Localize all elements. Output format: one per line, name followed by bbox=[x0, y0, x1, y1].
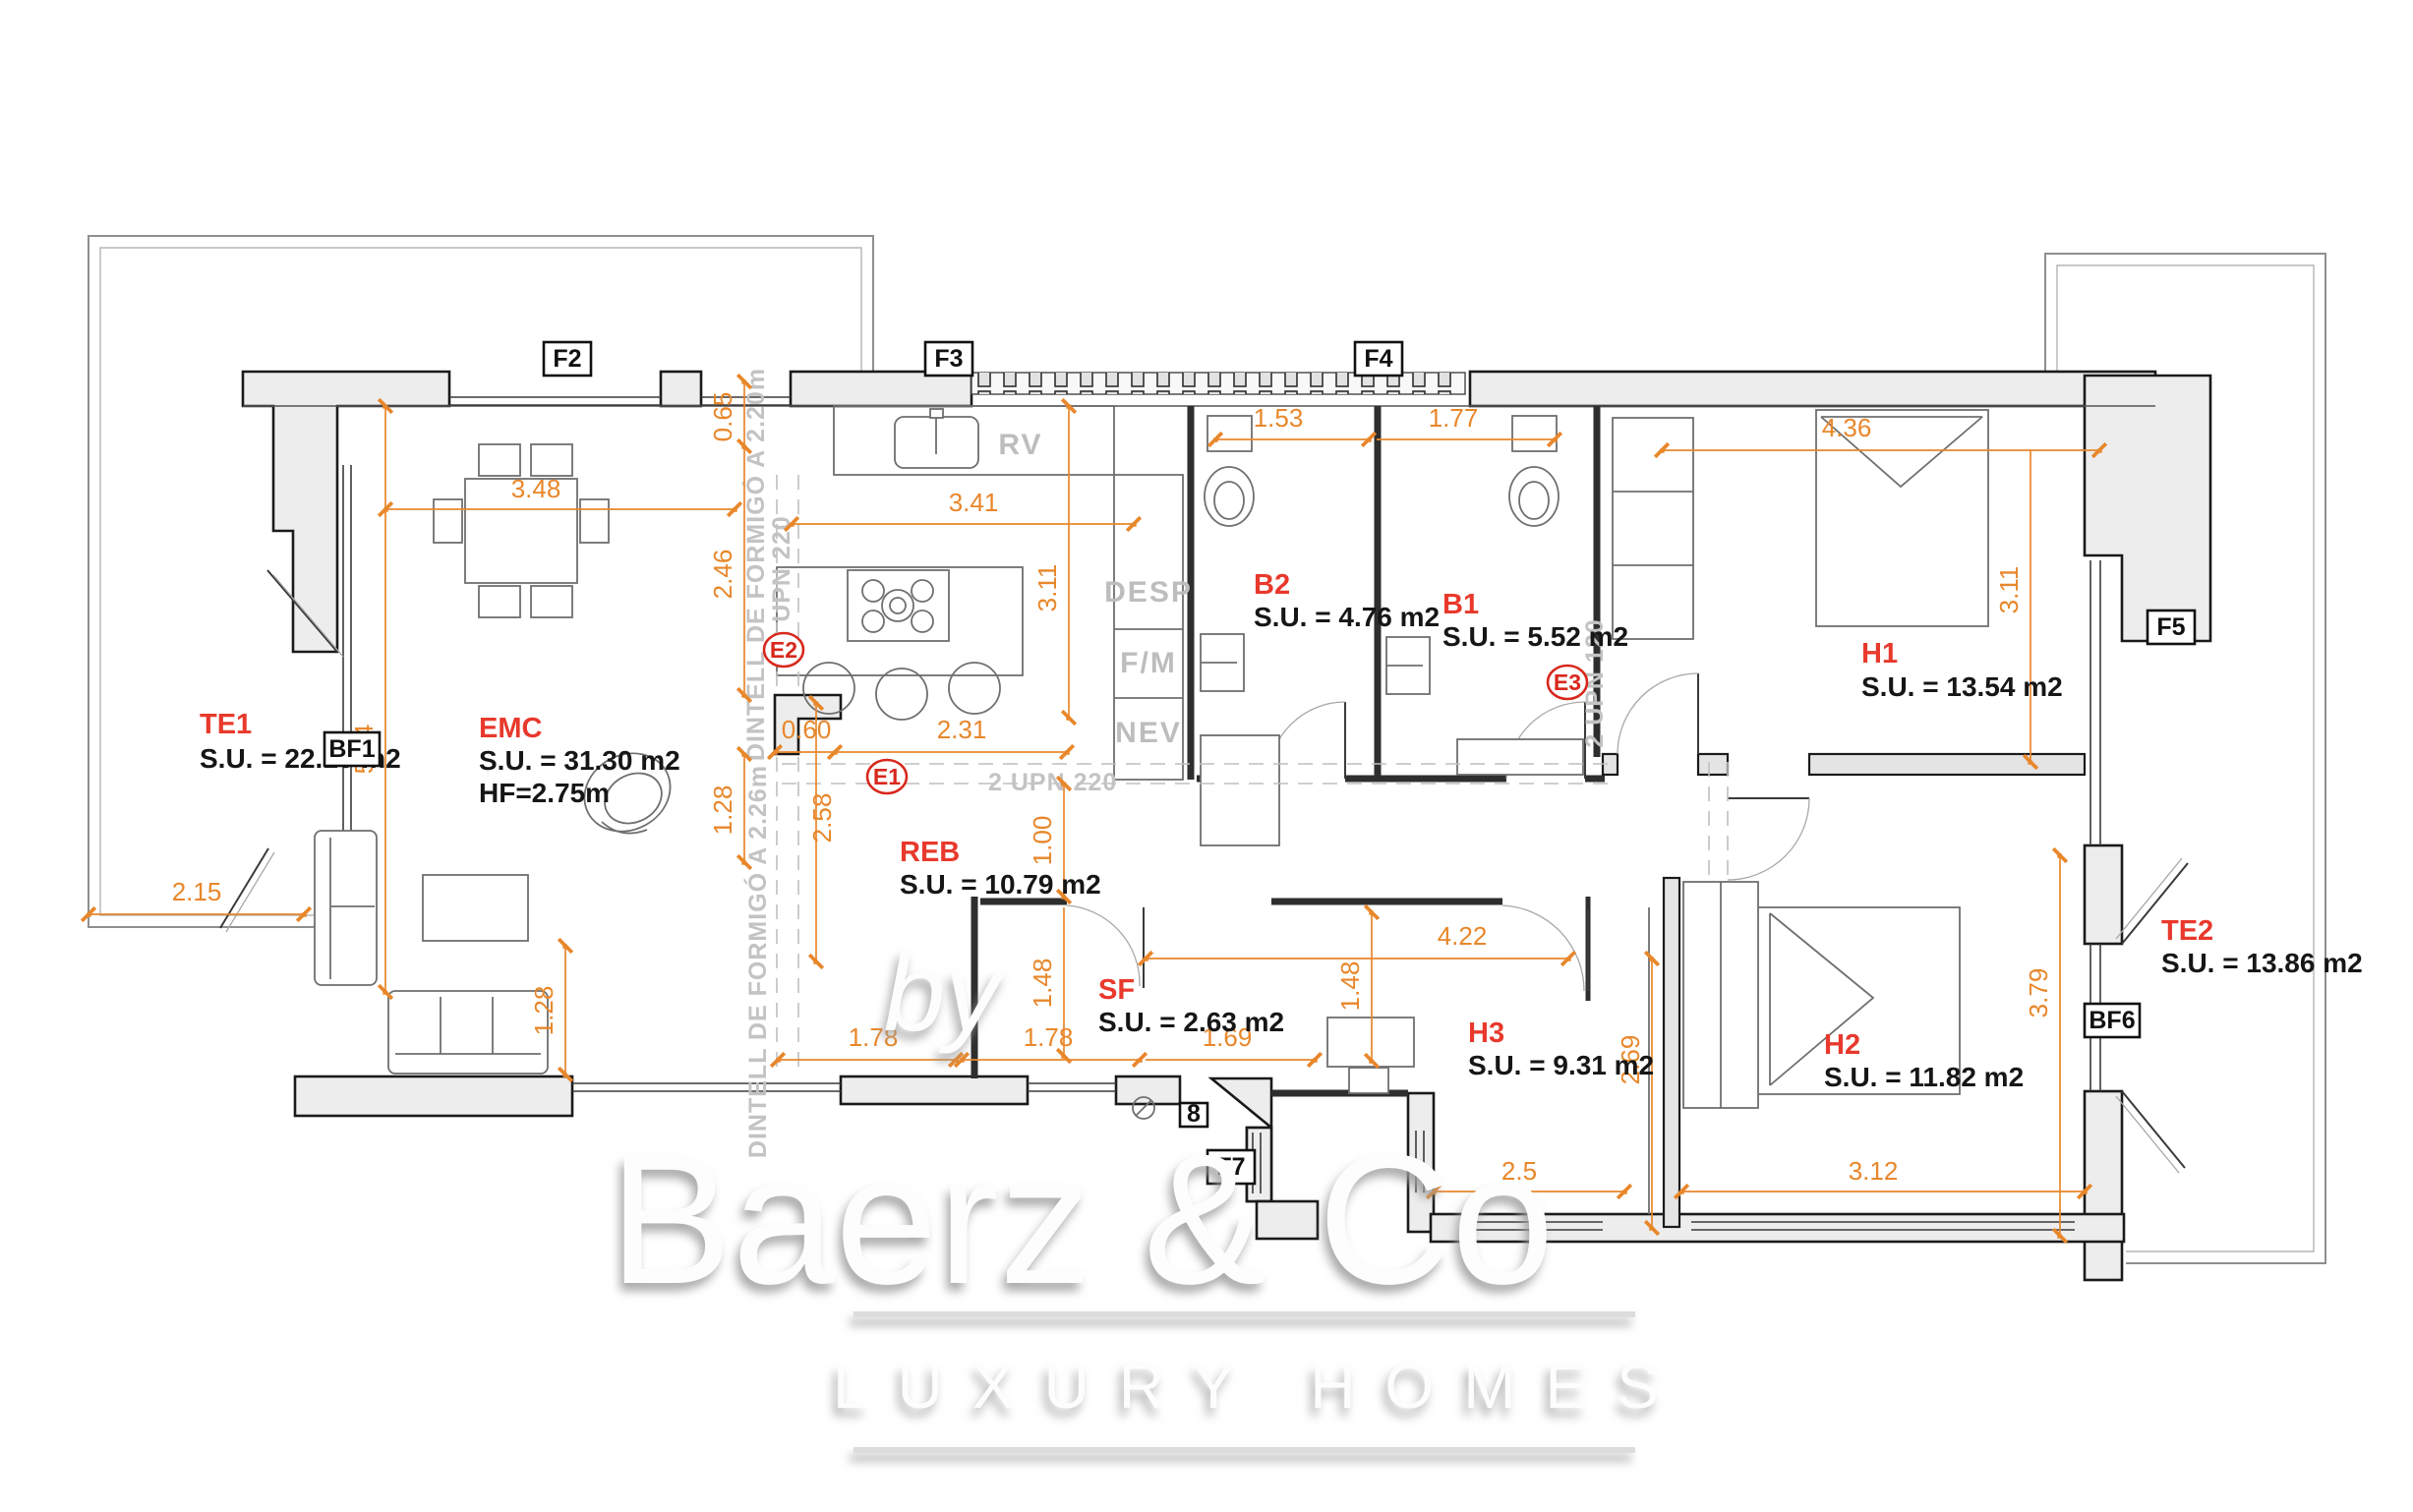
note-upn220-v: 2 UPN 220 bbox=[768, 515, 795, 644]
wall-south-seg3 bbox=[1116, 1076, 1180, 1104]
svg-text:E3: E3 bbox=[1554, 669, 1581, 695]
marker-e1: E1 bbox=[867, 760, 907, 793]
wall-top-left-corner bbox=[243, 372, 449, 652]
dim-215: 2.15 bbox=[172, 877, 222, 906]
note-dintell-226: DINTELL DE FORMIGÓ A 2.26m bbox=[742, 765, 772, 1158]
svg-text:E1: E1 bbox=[873, 764, 901, 789]
dining-table bbox=[434, 444, 609, 617]
room-h2-name: H2 bbox=[1824, 1029, 1860, 1061]
dim-312: 3.12 bbox=[1849, 1156, 1899, 1186]
window-f2 bbox=[449, 397, 661, 405]
dim-379: 3.79 bbox=[2024, 968, 2053, 1018]
label-f2: F2 bbox=[544, 342, 591, 376]
room-sf-area: S.U. = 2.63 m2 bbox=[1098, 1007, 1284, 1037]
wall-right-corner bbox=[2085, 376, 2210, 641]
door-h2 bbox=[1728, 798, 1809, 880]
dim-178b: 1.78 bbox=[1024, 1022, 1074, 1052]
dim-246: 2.46 bbox=[708, 550, 737, 600]
dim-177: 1.77 bbox=[1429, 403, 1479, 433]
dim-128b: 1.28 bbox=[529, 986, 559, 1036]
dim-065: 0.65 bbox=[708, 392, 737, 442]
watermark-tagline: LUXURY HOMES bbox=[833, 1351, 1688, 1422]
dim-100: 1.00 bbox=[1028, 816, 1057, 866]
label-f4: F4 bbox=[1355, 342, 1402, 376]
note-upn220-h: 2 UPN 220 bbox=[988, 769, 1117, 796]
watermark-rule-bottom bbox=[853, 1447, 1635, 1453]
room-h1-area: S.U. = 13.54 m2 bbox=[1861, 671, 2063, 702]
dim-422: 4.22 bbox=[1438, 921, 1488, 951]
label-fm: F/M bbox=[1120, 647, 1177, 679]
label-bf1: BF1 bbox=[324, 732, 380, 766]
marker-e3: E3 bbox=[1548, 666, 1587, 699]
room-b2-name: B2 bbox=[1254, 569, 1290, 601]
watermark-by: by bbox=[884, 931, 1006, 1054]
watermark-rule-top bbox=[853, 1311, 1635, 1317]
wall-south-living bbox=[295, 1076, 572, 1116]
room-te1-name: TE1 bbox=[200, 709, 252, 740]
label-f3: F3 bbox=[925, 342, 972, 376]
dim-341: 3.41 bbox=[949, 488, 999, 517]
room-emc-area: S.U. = 31.30 m2 bbox=[479, 745, 680, 776]
room-b2-area: S.U. = 4.76 m2 bbox=[1254, 602, 1440, 632]
room-emc-hf: HF=2.75m bbox=[479, 778, 610, 808]
wall-h2-h3 bbox=[1664, 878, 1679, 1227]
dim-060: 0.60 bbox=[782, 715, 832, 744]
label-desp: DESP bbox=[1104, 576, 1193, 609]
room-te2-name: TE2 bbox=[2161, 915, 2213, 947]
dim-153: 1.53 bbox=[1254, 403, 1304, 433]
coffee-table bbox=[423, 875, 528, 941]
floor-plan-drawing: 2 UPN 220 2 UPN 220 2 UPN 120 DINTELL DE… bbox=[0, 0, 2413, 1512]
kitchen-counter bbox=[834, 406, 1114, 475]
room-h3-area: S.U. = 9.31 m2 bbox=[1468, 1050, 1654, 1080]
label-bf6: BF6 bbox=[2085, 1004, 2140, 1037]
wardrobe-h2 bbox=[1683, 882, 1758, 1108]
room-b1-name: B1 bbox=[1442, 589, 1479, 620]
wall-top-bar2 bbox=[1470, 372, 2155, 406]
room-h2-area: S.U. = 11.82 m2 bbox=[1824, 1062, 2024, 1092]
label-rv: RV bbox=[998, 429, 1042, 461]
svg-text:BF6: BF6 bbox=[2089, 1007, 2135, 1034]
room-sf-name: SF bbox=[1098, 974, 1135, 1006]
svg-text:BF1: BF1 bbox=[328, 735, 375, 763]
desk-h3 bbox=[1327, 1018, 1414, 1093]
dim-258: 2.58 bbox=[807, 793, 837, 843]
wall-right-a bbox=[2085, 845, 2122, 944]
vanity-b1 bbox=[1386, 637, 1430, 694]
svg-text:F4: F4 bbox=[1364, 345, 1392, 373]
shower-b1 bbox=[1457, 739, 1583, 775]
wall-corridor-h1b bbox=[1698, 754, 1728, 775]
dim-436: 4.36 bbox=[1822, 413, 1872, 442]
window-f5 bbox=[2090, 560, 2100, 845]
dim-311a: 3.11 bbox=[1032, 564, 1062, 612]
dim-311b: 3.11 bbox=[1994, 566, 2024, 614]
floor-plan-page: 2 UPN 220 2 UPN 220 2 UPN 120 DINTELL DE… bbox=[0, 0, 2413, 1512]
door-te2-lower bbox=[2116, 1091, 2185, 1173]
wall-right-b bbox=[2085, 1091, 2122, 1280]
dim-148a: 1.48 bbox=[1028, 959, 1057, 1009]
room-h3-name: H3 bbox=[1468, 1018, 1504, 1049]
wall-pier bbox=[661, 372, 701, 406]
room-reb-area: S.U. = 10.79 m2 bbox=[900, 869, 1101, 900]
toilet-b1 bbox=[1509, 416, 1559, 526]
vanity-b2 bbox=[1201, 634, 1244, 691]
toilet-b2 bbox=[1205, 416, 1254, 526]
cabinet-b2-low bbox=[1201, 735, 1279, 845]
svg-text:F3: F3 bbox=[934, 345, 963, 373]
dim-128a: 1.28 bbox=[708, 785, 737, 836]
door-h1 bbox=[1618, 673, 1698, 754]
wall-corridor-h2 bbox=[1809, 754, 2085, 775]
room-reb-name: REB bbox=[900, 837, 960, 868]
sofa-vertical bbox=[315, 831, 377, 985]
room-te2-area: S.U. = 13.86 m2 bbox=[2161, 948, 2363, 978]
dim-348: 3.48 bbox=[511, 474, 561, 503]
svg-text:E2: E2 bbox=[770, 637, 797, 663]
label-f5: F5 bbox=[2148, 611, 2195, 644]
door-te1-lower bbox=[220, 848, 274, 932]
room-emc-name: EMC bbox=[479, 713, 543, 744]
svg-text:F2: F2 bbox=[553, 345, 581, 373]
window-south-1 bbox=[572, 1083, 841, 1091]
door-h3 bbox=[1502, 905, 1588, 991]
room-h1-name: H1 bbox=[1861, 638, 1898, 669]
dim-148b: 1.48 bbox=[1335, 961, 1365, 1012]
watermark-brand: Baerz & Co bbox=[609, 1116, 1554, 1322]
sofa-horizontal bbox=[388, 991, 548, 1074]
room-b1-area: S.U. = 5.52 m2 bbox=[1442, 621, 1628, 652]
window-south-2 bbox=[1028, 1083, 1116, 1091]
wall-south-seg2 bbox=[841, 1076, 1028, 1104]
bed-h1 bbox=[1816, 410, 1988, 626]
dim-231: 2.31 bbox=[937, 715, 987, 744]
label-nev: NEV bbox=[1115, 717, 1182, 749]
window-west bbox=[343, 465, 351, 845]
marker-e2: E2 bbox=[764, 633, 803, 667]
svg-text:F5: F5 bbox=[2156, 613, 2185, 641]
